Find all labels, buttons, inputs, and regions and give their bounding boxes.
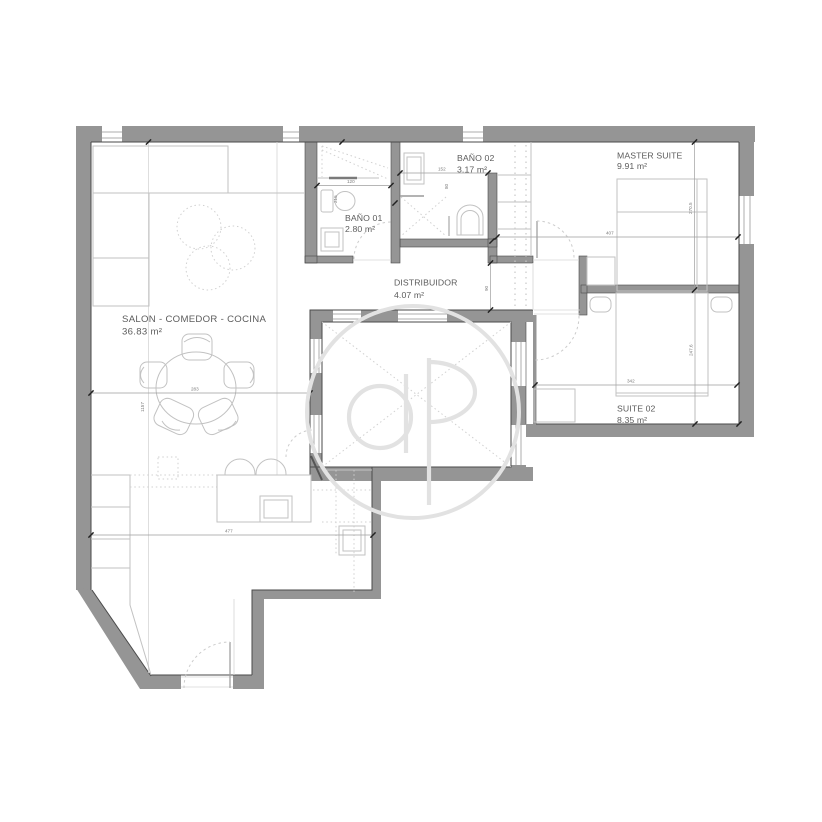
svg-text:3.17 m²: 3.17 m² [457,165,487,175]
svg-text:270.5: 270.5 [688,202,693,214]
svg-text:80: 80 [444,183,449,189]
svg-text:2.80 m²: 2.80 m² [345,224,375,234]
svg-text:152: 152 [438,167,446,172]
svg-text:247.6: 247.6 [689,344,694,356]
svg-text:477: 477 [225,529,233,534]
svg-text:SUITE 02: SUITE 02 [617,404,656,414]
svg-text:MASTER SUITE: MASTER SUITE [617,151,683,161]
svg-text:BAÑO 02: BAÑO 02 [457,153,494,163]
svg-text:283: 283 [191,387,199,392]
svg-text:SALON - COMEDOR - COCINA: SALON - COMEDOR - COCINA [122,314,266,325]
svg-text:9.91 m²: 9.91 m² [617,161,647,171]
svg-text:407: 407 [606,231,614,236]
svg-text:1157: 1157 [140,402,145,412]
svg-text:8.35 m²: 8.35 m² [617,415,647,425]
svg-text:342: 342 [627,379,635,384]
svg-text:BAÑO 01: BAÑO 01 [345,213,382,223]
svg-text:90: 90 [484,285,489,291]
svg-text:36.83 m²: 36.83 m² [122,327,163,338]
svg-text:DISTRIBUIDOR: DISTRIBUIDOR [394,278,457,288]
svg-text:4.07 m²: 4.07 m² [394,290,424,300]
svg-text:215: 215 [333,195,338,203]
svg-text:120: 120 [347,179,355,184]
